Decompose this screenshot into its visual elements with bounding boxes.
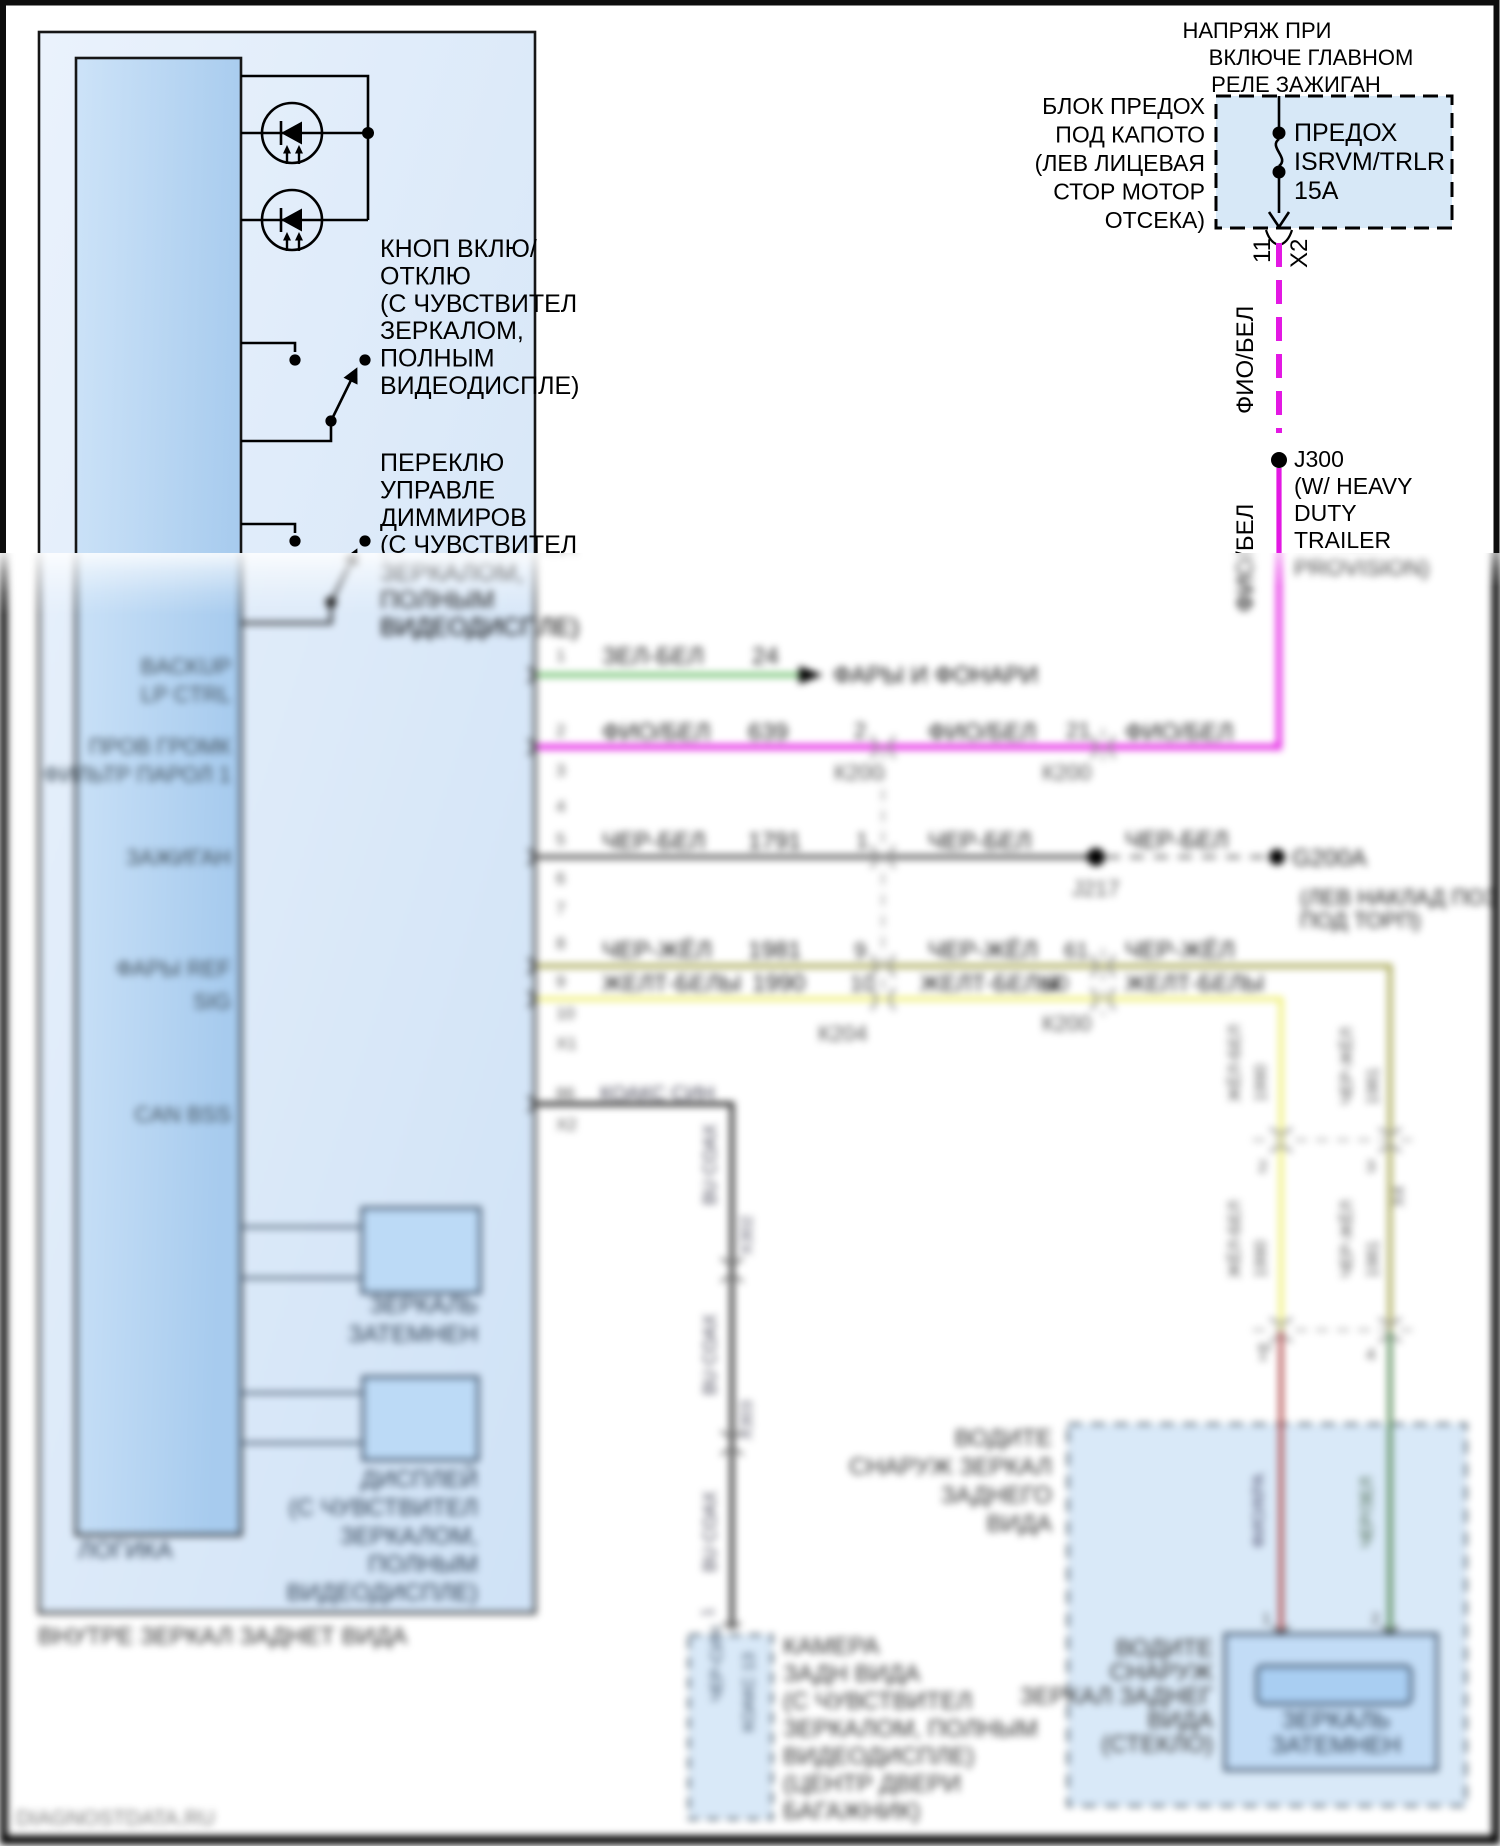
svg-text:ВОДИТЕ: ВОДИТЕ	[954, 1425, 1052, 1452]
svg-text:КОАКС СИН: КОАКС СИН	[600, 1083, 715, 1105]
svg-text:BU COAX: BU COAX	[700, 1491, 720, 1572]
svg-text:ПОЛНЫМ: ПОЛНЫМ	[380, 345, 495, 373]
svg-text:ПРЕДОХ: ПРЕДОХ	[1294, 119, 1398, 147]
svg-text:К200: К200	[834, 760, 884, 785]
svg-text:СНАРУЖ: СНАРУЖ	[1109, 1659, 1213, 1686]
svg-text:ЖЁЛ-БЕЛ: ЖЁЛ-БЕЛ	[1225, 1200, 1244, 1278]
svg-text:(ЛЕВ НАКЛАД ПОЗ: (ЛЕВ НАКЛАД ПОЗ	[1300, 885, 1498, 910]
svg-text:ПОЛНЫМ: ПОЛНЫМ	[368, 1551, 478, 1578]
svg-text:1: 1	[1258, 1345, 1267, 1364]
svg-text:(ЦЕНТР ДВЕРИ: (ЦЕНТР ДВЕРИ	[783, 1771, 961, 1798]
svg-text:ВОДИТЕ: ВОДИТЕ	[1115, 1635, 1213, 1662]
svg-text:60: 60	[1044, 971, 1068, 996]
svg-text:BU COAX: BU COAX	[700, 1124, 720, 1205]
svg-text:ЛОГИКА: ЛОГИКА	[78, 1537, 173, 1564]
svg-text:ЗЕРКАЛОМ,: ЗЕРКАЛОМ,	[340, 1523, 478, 1550]
svg-text:ФИО/БЕЛ: ФИО/БЕЛ	[602, 719, 710, 746]
svg-text:ВИДЕОДИСПЛЕ): ВИДЕОДИСПЛЕ)	[380, 372, 579, 400]
svg-text:3: 3	[1366, 1157, 1375, 1176]
svg-text:CAN BSS: CAN BSS	[134, 1102, 231, 1127]
svg-text:ФИО/БЕЛ: ФИО/БЕЛ	[1232, 306, 1259, 414]
svg-text:(С ЧУВСТВИТЕЛ: (С ЧУВСТВИТЕЛ	[783, 1688, 972, 1715]
svg-text:9: 9	[854, 938, 866, 963]
svg-text:ЗЕРКАЛЬ: ЗЕРКАЛЬ	[369, 1292, 478, 1319]
svg-text:ЗАТЕМНЕН: ЗАТЕМНЕН	[1271, 1732, 1401, 1759]
svg-text:К204: К204	[818, 1021, 868, 1046]
svg-text:ЧЕР-СИН: ЧЕР-СИН	[707, 1626, 726, 1702]
svg-text:К200: К200	[1042, 1011, 1092, 1036]
svg-text:ОТКЛЮ: ОТКЛЮ	[380, 262, 471, 290]
svg-text:ПОД ТОРП): ПОД ТОРП)	[1300, 908, 1421, 933]
svg-text:1: 1	[856, 828, 868, 853]
svg-text:ЖЁЛ-БЕЛ: ЖЁЛ-БЕЛ	[1225, 1024, 1244, 1102]
svg-text:ЧЕР-ЖЁЛ: ЧЕР-ЖЁЛ	[1337, 1200, 1356, 1278]
svg-text:ФИО/КРА: ФИО/КРА	[1249, 1473, 1268, 1548]
svg-text:7: 7	[556, 899, 565, 918]
svg-text:24: 24	[752, 643, 779, 670]
svg-text:ЗЕРКАЛ ЗАДНЕГ: ЗЕРКАЛ ЗАДНЕГ	[1020, 1683, 1213, 1710]
svg-text:15A: 15A	[1294, 177, 1339, 205]
svg-text:ФАРЫ REF: ФАРЫ REF	[116, 956, 231, 981]
svg-text:ЖЕЛТ-БЕЛЫ: ЖЕЛТ-БЕЛЫ	[920, 970, 1059, 996]
svg-text:ЧЕР-ЖЁЛ: ЧЕР-ЖЁЛ	[1125, 937, 1235, 964]
svg-text:X4: X4	[1389, 1186, 1408, 1207]
svg-text:ДИСПЛЕЙ: ДИСПЛЕЙ	[361, 1465, 478, 1493]
svg-text:БАГАЖНИК): БАГАЖНИК)	[783, 1798, 920, 1825]
svg-text:4: 4	[1366, 1345, 1375, 1364]
svg-text:6: 6	[556, 869, 565, 888]
svg-text:ЧЕР-ЖЁЛ: ЧЕР-ЖЁЛ	[602, 937, 712, 964]
svg-text:1981: 1981	[748, 937, 801, 964]
svg-text:SIG: SIG	[193, 989, 231, 1014]
svg-text:ФИО/БЕЛ: ФИО/БЕЛ	[1125, 719, 1233, 746]
svg-text:2: 2	[854, 718, 866, 743]
svg-text:61: 61	[1064, 938, 1088, 963]
svg-text:X303: X303	[737, 1400, 756, 1440]
svg-text:1: 1	[1262, 1611, 1271, 1628]
svg-text:1981: 1981	[1363, 1067, 1382, 1105]
svg-text:ЗАДНЕГО: ЗАДНЕГО	[941, 1482, 1052, 1509]
svg-text:2: 2	[556, 721, 565, 740]
svg-text:СТОР МОТОР: СТОР МОТОР	[1053, 179, 1205, 205]
svg-text:ДИММИРОВ: ДИММИРОВ	[380, 504, 527, 532]
svg-text:2: 2	[1371, 1611, 1380, 1628]
svg-text:ЗАДН ВИДА: ЗАДН ВИДА	[783, 1661, 920, 1688]
svg-text:10: 10	[556, 1004, 575, 1023]
svg-text:ПРОВ ГРОМК: ПРОВ ГРОМК	[89, 734, 231, 759]
svg-text:РЕЛЕ ЗАЖИГАН: РЕЛЕ ЗАЖИГАН	[1211, 72, 1381, 97]
svg-text:ЗЕРКАЛЬ: ЗЕРКАЛЬ	[1282, 1707, 1391, 1734]
svg-text:3: 3	[556, 761, 565, 780]
svg-text:ЗАЖИГАН: ЗАЖИГАН	[126, 845, 231, 870]
svg-text:ЖЕЛТ-БЕЛЫ: ЖЕЛТ-БЕЛЫ	[1125, 970, 1264, 996]
svg-text:1990: 1990	[1251, 1064, 1270, 1102]
svg-text:1981: 1981	[1363, 1240, 1382, 1278]
svg-text:9: 9	[556, 972, 565, 991]
svg-text:1990: 1990	[1251, 1240, 1270, 1278]
svg-text:2: 2	[1258, 1157, 1267, 1176]
svg-text:ЗАТЕМНЕН: ЗАТЕМНЕН	[348, 1321, 478, 1348]
svg-text:J300: J300	[1294, 446, 1344, 472]
svg-text:СНАРУЖ ЗЕРКАЛ: СНАРУЖ ЗЕРКАЛ	[849, 1454, 1052, 1481]
svg-text:КНОП ВКЛЮ/: КНОП ВКЛЮ/	[380, 235, 537, 263]
svg-text:(СТЕКЛО): (СТЕКЛО)	[1101, 1731, 1213, 1758]
svg-text:ЧЕР-БЕЛ: ЧЕР-БЕЛ	[1125, 827, 1229, 854]
svg-text:ВИДА: ВИДА	[1147, 1707, 1213, 1734]
svg-text:11: 11	[1249, 238, 1276, 263]
svg-text:ЧЕР-ЖЁЛ: ЧЕР-ЖЁЛ	[1337, 1027, 1356, 1105]
svg-text:ЗЕЛ-БЕЛ: ЗЕЛ-БЕЛ	[602, 643, 704, 670]
svg-text:1990: 1990	[752, 970, 805, 997]
svg-text:ЧЕР-ЖЁЛ: ЧЕР-ЖЁЛ	[928, 937, 1038, 964]
svg-text:(W/ HEAVY: (W/ HEAVY	[1294, 473, 1412, 499]
svg-text:ЧЕР-БЕЛ: ЧЕР-БЕЛ	[928, 828, 1032, 855]
svg-text:5: 5	[556, 830, 565, 849]
svg-text:ВИДА: ВИДА	[986, 1511, 1052, 1538]
svg-text:ISRVM/TRLR: ISRVM/TRLR	[1294, 148, 1445, 176]
svg-text:ВИДЕОДИСПЛЕ): ВИДЕОДИСПЛЕ)	[783, 1743, 975, 1770]
svg-text:(ЛЕВ ЛИЦЕВАЯ: (ЛЕВ ЛИЦЕВАЯ	[1035, 150, 1205, 176]
svg-text:1: 1	[698, 1608, 717, 1617]
svg-text:X2: X2	[1286, 239, 1313, 268]
svg-text:ЧЕР-БЕЛ: ЧЕР-БЕЛ	[602, 828, 706, 855]
svg-text:(С ЧУВСТВИТЕЛ: (С ЧУВСТВИТЕЛ	[380, 290, 577, 318]
svg-text:ВКЛЮЧЕ ГЛАВНОМ: ВКЛЮЧЕ ГЛАВНОМ	[1209, 45, 1414, 70]
svg-text:НАПРЯЖ ПРИ: НАПРЯЖ ПРИ	[1183, 18, 1332, 43]
svg-text:DUTY: DUTY	[1294, 500, 1357, 526]
svg-text:639: 639	[748, 719, 788, 746]
svg-text:BACKUP: BACKUP	[141, 654, 231, 679]
svg-text:ЗЕРКАЛОМ, ПОЛНЫМ: ЗЕРКАЛОМ, ПОЛНЫМ	[783, 1716, 1038, 1743]
svg-text:8: 8	[556, 934, 565, 953]
svg-text:X2: X2	[556, 1115, 577, 1134]
svg-text:4: 4	[556, 797, 565, 816]
svg-text:X302: X302	[737, 1215, 756, 1255]
svg-text:10: 10	[850, 971, 874, 996]
svg-text:LP CTRL: LP CTRL	[141, 682, 231, 707]
svg-text:ПОД КАПОТО: ПОД КАПОТО	[1055, 122, 1205, 148]
svg-text:КАМЕРА: КАМЕРА	[783, 1633, 879, 1660]
svg-text:ВИДЕОДИСПЛЕ): ВИДЕОДИСПЛЕ)	[287, 1580, 479, 1607]
svg-text:DIAGNOSTDATA.RU: DIAGNOSTDATA.RU	[16, 1807, 215, 1830]
svg-text:J217: J217	[1072, 876, 1120, 901]
svg-text:1791: 1791	[748, 828, 801, 855]
svg-text:ЧЕР/ЗЕЛ: ЧЕР/ЗЕЛ	[1357, 1477, 1376, 1549]
svg-text:X1: X1	[556, 1034, 577, 1053]
svg-text:ЖЕЛТ-БЕЛЫ: ЖЕЛТ-БЕЛЫ	[602, 970, 741, 996]
svg-text:КОАКС 13: КОАКС 13	[739, 1652, 758, 1732]
svg-text:УПРАВЛЕ: УПРАВЛЕ	[380, 476, 495, 504]
svg-text:ВНУТРЕ ЗЕРКАЛ ЗАДНЕТ ВИДА: ВНУТРЕ ЗЕРКАЛ ЗАДНЕТ ВИДА	[38, 1623, 407, 1650]
svg-text:86: 86	[556, 1084, 575, 1103]
svg-text:ФИЛЬТР ПАРОЛ 1: ФИЛЬТР ПАРОЛ 1	[43, 762, 231, 787]
svg-text:(С ЧУВСТВИТЕЛ: (С ЧУВСТВИТЕЛ	[289, 1494, 478, 1521]
svg-text:ВИДЕОДИСПЛЕ): ВИДЕОДИСПЛЕ)	[380, 613, 579, 641]
svg-text:21: 21	[1066, 718, 1090, 743]
svg-text:ФАРЫ И ФОНАРИ: ФАРЫ И ФОНАРИ	[833, 662, 1038, 689]
svg-text:ПЕРЕКЛЮ: ПЕРЕКЛЮ	[380, 449, 504, 477]
svg-text:BU COAX: BU COAX	[700, 1314, 720, 1395]
svg-text:ЗЕРКАЛОМ,: ЗЕРКАЛОМ,	[380, 317, 524, 345]
svg-text:БЛОК ПРЕДОХ: БЛОК ПРЕДОХ	[1042, 93, 1205, 119]
svg-text:ФИО/БЕЛ: ФИО/БЕЛ	[928, 719, 1036, 746]
svg-text:К200: К200	[1042, 760, 1092, 785]
svg-text:ОТСЕКА): ОТСЕКА)	[1105, 207, 1205, 233]
svg-text:1: 1	[556, 646, 565, 665]
svg-text:G200А: G200А	[1292, 845, 1367, 872]
svg-text:TRAILER: TRAILER	[1294, 527, 1391, 553]
